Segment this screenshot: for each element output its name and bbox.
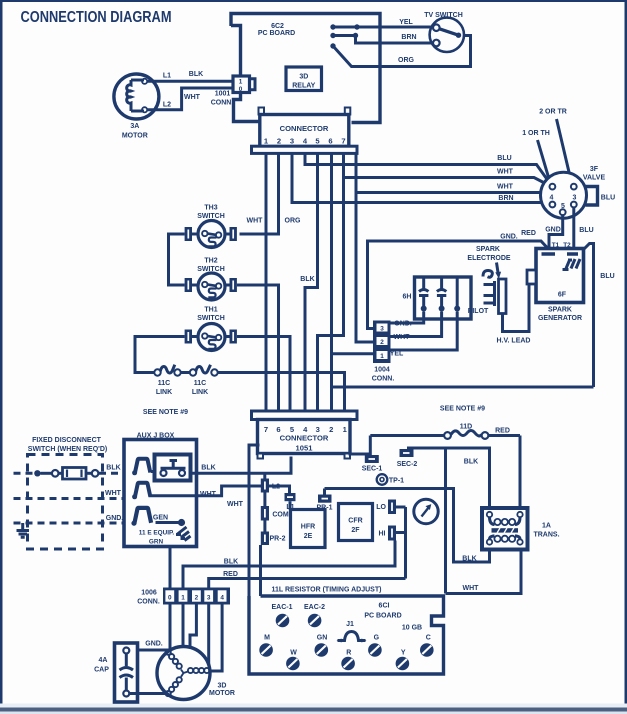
svg-text:WHT: WHT xyxy=(200,491,217,498)
svg-text:WHT: WHT xyxy=(247,218,264,225)
svg-text:1051: 1051 xyxy=(296,444,314,453)
svg-text:BLU: BLU xyxy=(497,155,511,162)
svg-text:CONNECTION DIAGRAM: CONNECTION DIAGRAM xyxy=(21,9,172,26)
svg-text:Y: Y xyxy=(401,650,406,657)
svg-text:SPARK: SPARK xyxy=(548,307,572,314)
svg-text:BLK: BLK xyxy=(224,559,238,566)
svg-text:6: 6 xyxy=(328,137,332,146)
svg-text:WHT: WHT xyxy=(497,184,514,191)
svg-text:GND.: GND. xyxy=(500,234,518,241)
svg-text:H.V. LEAD: H.V. LEAD xyxy=(497,338,531,345)
svg-text:GND: GND xyxy=(545,227,561,234)
svg-text:7: 7 xyxy=(264,425,268,434)
svg-text:RED: RED xyxy=(521,230,536,237)
svg-text:6H: 6H xyxy=(403,294,412,301)
svg-text:SEC-2: SEC-2 xyxy=(397,461,418,468)
svg-text:3: 3 xyxy=(207,595,211,602)
svg-text:MOTOR: MOTOR xyxy=(122,133,148,140)
svg-text:PR-1: PR-1 xyxy=(317,505,333,512)
svg-text:BLU: BLU xyxy=(600,273,614,280)
svg-text:GENERATOR: GENERATOR xyxy=(538,315,582,322)
svg-text:TRANS.: TRANS. xyxy=(533,532,559,539)
svg-text:TH1: TH1 xyxy=(204,307,217,314)
svg-text:BLU: BLU xyxy=(579,227,593,234)
svg-text:TV SWITCH: TV SWITCH xyxy=(424,12,463,19)
svg-text:EAC-2: EAC-2 xyxy=(304,604,325,611)
svg-text:BLK: BLK xyxy=(201,465,215,472)
svg-text:SEE NOTE #9: SEE NOTE #9 xyxy=(143,409,188,416)
svg-text:L1: L1 xyxy=(163,73,171,80)
svg-text:6CI: 6CI xyxy=(379,603,390,610)
svg-text:BLU: BLU xyxy=(601,195,615,202)
svg-text:1A: 1A xyxy=(542,523,551,530)
svg-text:BLK: BLK xyxy=(464,459,478,466)
svg-text:3D: 3D xyxy=(299,74,308,81)
svg-text:1 OR TH: 1 OR TH xyxy=(522,130,550,137)
svg-text:6C2: 6C2 xyxy=(271,23,284,30)
svg-text:BLK: BLK xyxy=(462,556,476,563)
svg-text:W: W xyxy=(290,650,297,657)
svg-text:GND.: GND. xyxy=(394,321,412,328)
svg-text:2: 2 xyxy=(277,137,281,146)
svg-text:10 GB: 10 GB xyxy=(402,625,422,632)
svg-text:BLK: BLK xyxy=(189,71,203,78)
svg-text:4: 4 xyxy=(220,595,224,602)
svg-text:MOTOR: MOTOR xyxy=(209,690,235,697)
svg-text:1004: 1004 xyxy=(374,367,390,374)
svg-text:6F: 6F xyxy=(558,292,567,299)
svg-text:2E: 2E xyxy=(304,533,313,540)
svg-text:GRN: GRN xyxy=(149,539,164,546)
svg-text:4A: 4A xyxy=(99,657,108,664)
svg-text:G: G xyxy=(374,635,380,642)
svg-text:WHT: WHT xyxy=(184,94,201,101)
svg-text:PC BOARD: PC BOARD xyxy=(258,30,295,37)
svg-text:ELECTRODE: ELECTRODE xyxy=(467,255,511,262)
svg-text:PR-2: PR-2 xyxy=(270,536,286,543)
svg-text:LINK: LINK xyxy=(192,389,208,396)
svg-text:BLK: BLK xyxy=(106,465,120,472)
svg-text:0: 0 xyxy=(239,86,243,93)
svg-text:11L RESISTOR (TIMING ADJUST): 11L RESISTOR (TIMING ADJUST) xyxy=(272,587,382,594)
svg-text:LO: LO xyxy=(376,504,386,511)
svg-text:1: 1 xyxy=(380,353,384,360)
svg-text:CONNECTOR: CONNECTOR xyxy=(280,124,329,133)
svg-text:RED: RED xyxy=(223,571,238,578)
svg-text:LINK: LINK xyxy=(156,389,172,396)
svg-text:ORG: ORG xyxy=(285,218,302,225)
svg-text:11 E EQUIP.: 11 E EQUIP. xyxy=(139,530,175,537)
svg-text:WHT: WHT xyxy=(497,169,514,176)
svg-text:WHT: WHT xyxy=(105,490,122,497)
svg-text:L2: L2 xyxy=(272,484,280,491)
svg-text:RELAY: RELAY xyxy=(292,83,315,90)
svg-text:EAC-1: EAC-1 xyxy=(271,604,292,611)
svg-text:ORG: ORG xyxy=(398,57,415,64)
svg-text:3: 3 xyxy=(290,137,294,146)
svg-text:3: 3 xyxy=(380,326,384,333)
svg-text:BRN: BRN xyxy=(401,34,416,41)
svg-text:TH3: TH3 xyxy=(204,205,217,212)
svg-text:SEE NOTE #9: SEE NOTE #9 xyxy=(440,406,485,413)
svg-text:GND.: GND. xyxy=(106,515,124,522)
svg-text:2: 2 xyxy=(195,595,199,602)
svg-text:1006: 1006 xyxy=(141,590,157,597)
svg-text:J1: J1 xyxy=(346,621,354,628)
svg-text:WHT: WHT xyxy=(394,334,411,341)
svg-text:COM: COM xyxy=(272,512,289,519)
svg-text:TH2: TH2 xyxy=(204,258,217,265)
svg-text:2: 2 xyxy=(329,425,333,434)
svg-text:CFR: CFR xyxy=(348,518,362,525)
svg-text:0: 0 xyxy=(168,595,172,602)
svg-text:SWITCH: SWITCH xyxy=(197,315,225,322)
svg-text:3: 3 xyxy=(573,195,577,202)
svg-text:1001: 1001 xyxy=(215,91,231,98)
svg-text:11C: 11C xyxy=(158,380,170,387)
svg-text:TP-1: TP-1 xyxy=(389,478,404,485)
svg-text:SWITCH (WHEN REQ'D): SWITCH (WHEN REQ'D) xyxy=(28,446,107,453)
svg-text:HI: HI xyxy=(379,531,386,538)
svg-text:CONN.: CONN. xyxy=(137,599,160,606)
svg-text:GN: GN xyxy=(317,635,328,642)
svg-text:SEC-1: SEC-1 xyxy=(362,466,383,473)
svg-text:R: R xyxy=(346,650,351,657)
svg-text:C: C xyxy=(426,635,431,642)
svg-text:4: 4 xyxy=(550,195,554,202)
svg-text:1: 1 xyxy=(239,79,243,86)
svg-text:FIXED DISCONNECT: FIXED DISCONNECT xyxy=(32,437,102,444)
svg-text:11D: 11D xyxy=(460,424,472,431)
svg-text:BRN: BRN xyxy=(498,195,513,202)
svg-text:YEL: YEL xyxy=(390,351,404,358)
svg-text:1: 1 xyxy=(181,595,185,602)
svg-text:L2: L2 xyxy=(163,102,171,109)
svg-text:CONN.: CONN. xyxy=(211,100,234,107)
svg-text:PC BOARD: PC BOARD xyxy=(364,613,401,620)
svg-text:RED: RED xyxy=(495,428,510,435)
svg-text:HFR: HFR xyxy=(301,524,315,531)
svg-text:7: 7 xyxy=(341,137,345,146)
svg-text:11C: 11C xyxy=(194,380,206,387)
svg-text:CONN.: CONN. xyxy=(372,376,395,383)
svg-text:BLK: BLK xyxy=(300,276,314,283)
svg-text:2 OR TR: 2 OR TR xyxy=(539,109,567,116)
svg-text:PILOT: PILOT xyxy=(468,308,489,315)
svg-text:2F: 2F xyxy=(351,527,360,534)
svg-text:L1: L1 xyxy=(286,504,294,511)
svg-text:3A: 3A xyxy=(130,123,139,130)
svg-text:M: M xyxy=(264,635,270,642)
svg-text:GND.: GND. xyxy=(145,641,163,648)
svg-text:5: 5 xyxy=(561,203,565,210)
svg-text:2: 2 xyxy=(380,339,384,346)
svg-text:VALVE: VALVE xyxy=(583,175,606,182)
svg-text:CONNECTOR: CONNECTOR xyxy=(280,434,329,443)
svg-text:SPARK: SPARK xyxy=(476,246,500,253)
svg-text:GEN: GEN xyxy=(153,515,168,522)
svg-text:YEL: YEL xyxy=(399,19,413,26)
svg-text:3F: 3F xyxy=(590,166,599,173)
svg-text:WHT: WHT xyxy=(227,501,244,508)
svg-text:3D: 3D xyxy=(218,683,227,690)
svg-text:WHT: WHT xyxy=(463,585,480,592)
svg-text:CAP: CAP xyxy=(94,667,109,674)
